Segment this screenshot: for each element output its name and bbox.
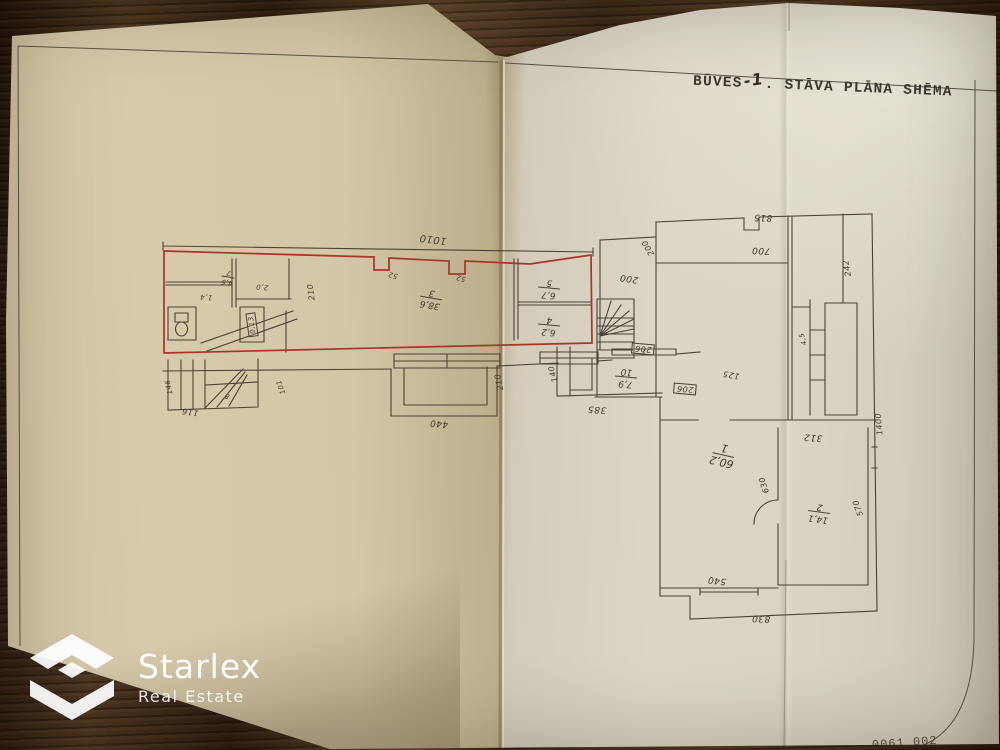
photo-of-floor-plan: 101052522101,42,014611610184402101403852… <box>0 0 1000 750</box>
plan-walls <box>163 214 877 619</box>
brand-name: Starlex <box>138 650 261 684</box>
starlex-watermark: Starlex Real Estate <box>22 628 261 728</box>
title-prefix: BŪVES <box>693 74 743 92</box>
title-floor-handwritten: -1 <box>742 69 765 91</box>
starlex-logo-text: Starlex Real Estate <box>138 650 261 706</box>
starlex-logo-icon <box>22 628 122 728</box>
paper-fold-highlight <box>503 60 504 748</box>
brand-tagline: Real Estate <box>138 687 261 706</box>
paper-fold-crease <box>500 60 501 748</box>
